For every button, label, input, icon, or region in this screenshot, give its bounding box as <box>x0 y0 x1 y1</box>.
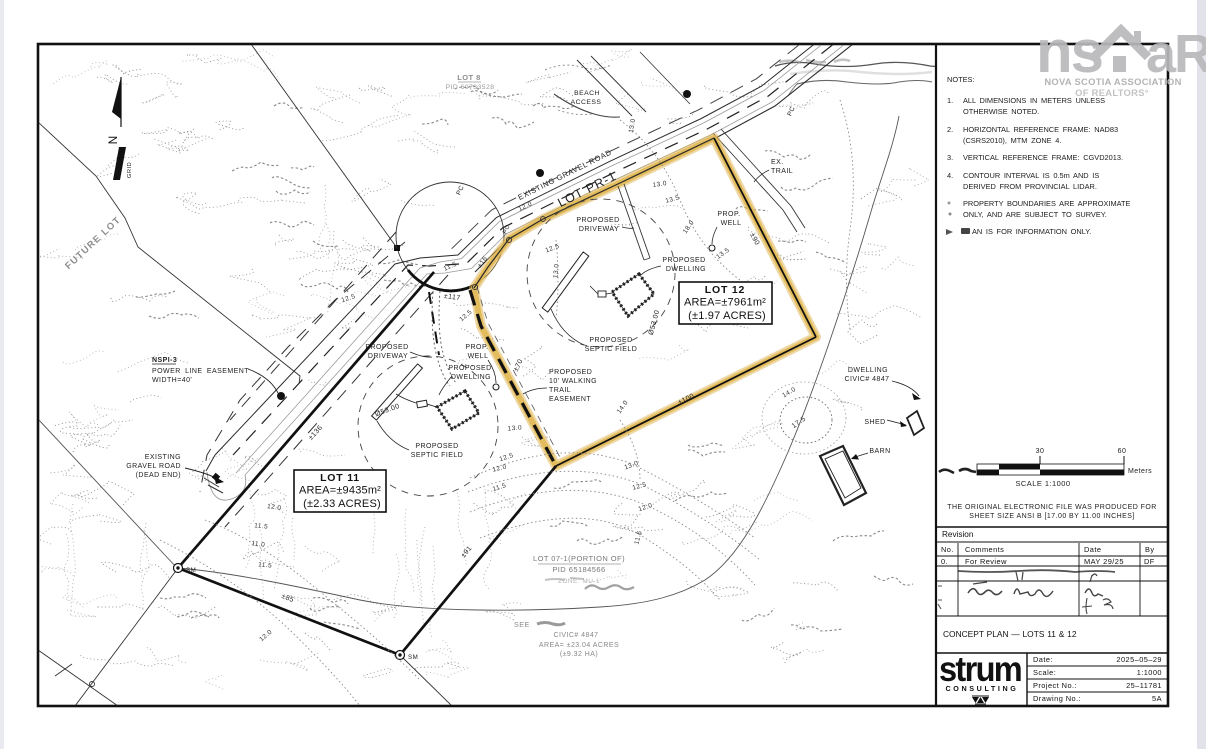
svg-text:No.: No. <box>941 545 954 554</box>
svg-text:PROPOSED: PROPOSED <box>549 369 592 376</box>
svg-text:Comments: Comments <box>965 545 1004 554</box>
svg-text:DF: DF <box>1144 557 1155 566</box>
svg-text:60: 60 <box>1118 448 1127 455</box>
svg-text:DERIVED FROM PROVINCIAL LIDAR.: DERIVED FROM PROVINCIAL LIDAR. <box>963 182 1097 191</box>
svg-text:AREA=±7961m²: AREA=±7961m² <box>684 297 766 309</box>
svg-text:PROPOSED: PROPOSED <box>589 337 632 344</box>
svg-text:PROP.: PROP. <box>717 211 740 218</box>
svg-text:SM: SM <box>186 567 196 574</box>
svg-text:DRIVEWAY: DRIVEWAY <box>579 226 619 233</box>
svg-text:AREA= ±23.04 ACRES: AREA= ±23.04 ACRES <box>539 642 619 649</box>
svg-text:OTHERWISE NOTED.: OTHERWISE NOTED. <box>963 107 1039 116</box>
svg-text:ACCESS: ACCESS <box>571 99 602 106</box>
svg-text:ONLY, AND ARE SUBJECT TO SURVE: ONLY, AND ARE SUBJECT TO SURVEY. <box>963 210 1107 219</box>
svg-text:CONSULTING: CONSULTING <box>946 684 1019 693</box>
svg-text:N: N <box>106 136 120 145</box>
svg-text:LOT 12: LOT 12 <box>705 284 745 296</box>
svg-text:LOT 07-1(PORTION OF): LOT 07-1(PORTION OF) <box>533 554 625 563</box>
svg-text:(±9.32 HA): (±9.32 HA) <box>560 651 598 658</box>
svg-text:30: 30 <box>1036 448 1045 455</box>
svg-text:Project No.:: Project No.: <box>1033 681 1077 690</box>
svg-text:(CSRS2010), MTM ZONE 4.: (CSRS2010), MTM ZONE 4. <box>963 136 1061 145</box>
svg-text:SCALE 1:1000: SCALE 1:1000 <box>1015 479 1070 488</box>
svg-text:LOT 8: LOT 8 <box>457 73 481 82</box>
svg-text:WIDTH=40': WIDTH=40' <box>152 377 192 384</box>
svg-text:TRAIL: TRAIL <box>771 168 793 175</box>
svg-text:ALL DIMENSIONS IN METERS UNLES: ALL DIMENSIONS IN METERS UNLESS <box>963 96 1105 105</box>
svg-text:PID 65184566: PID 65184566 <box>552 565 605 574</box>
svg-text:PROPOSED: PROPOSED <box>576 217 619 224</box>
svg-text:SEPTIC FIELD: SEPTIC FIELD <box>585 346 637 353</box>
svg-text:25–11781: 25–11781 <box>1126 681 1162 690</box>
svg-text:SM: SM <box>408 654 418 661</box>
svg-text:NSPI-3: NSPI-3 <box>152 357 177 364</box>
svg-text:aR: aR <box>1146 24 1206 84</box>
svg-text:Meters: Meters <box>1128 468 1152 475</box>
svg-text:MAY 29/25: MAY 29/25 <box>1084 557 1124 566</box>
svg-text:ns: ns <box>1036 18 1102 85</box>
svg-text:EASEMENT: EASEMENT <box>549 396 591 403</box>
svg-text:WELL: WELL <box>468 353 489 360</box>
svg-text:EX.: EX. <box>771 159 784 166</box>
svg-text:2025–05–29: 2025–05–29 <box>1116 655 1162 664</box>
svg-text:PROPOSED: PROPOSED <box>365 344 408 351</box>
svg-text:TRAIL: TRAIL <box>549 387 571 394</box>
svg-text:NOTES:: NOTES: <box>947 75 975 84</box>
svg-text:For Review: For Review <box>965 557 1007 566</box>
svg-text:2.: 2. <box>947 125 953 134</box>
svg-text:CIVIC# 4847: CIVIC# 4847 <box>844 376 889 383</box>
svg-text:PROPOSED: PROPOSED <box>662 257 705 264</box>
svg-text:CIVIC# 4847: CIVIC# 4847 <box>553 632 598 639</box>
svg-text:By: By <box>1145 545 1155 554</box>
svg-text:Date: Date <box>1084 545 1101 554</box>
svg-text:1:1000: 1:1000 <box>1137 668 1162 677</box>
svg-text:SHEET SIZE ANSI B [17.00 BY 11: SHEET SIZE ANSI B [17.00 BY 11.00 INCHES… <box>969 513 1135 520</box>
svg-text:GRAVEL ROAD: GRAVEL ROAD <box>126 463 181 470</box>
svg-text:CONCEPT PLAN — LOTS 11 & 12: CONCEPT PLAN — LOTS 11 & 12 <box>943 629 1077 639</box>
svg-text:PROP.: PROP. <box>465 344 488 351</box>
svg-text:AN IS FOR INFORMATION ONLY.: AN IS FOR INFORMATION ONLY. <box>972 227 1091 236</box>
svg-text:13.0: 13.0 <box>552 263 560 278</box>
svg-text:4.: 4. <box>947 171 953 180</box>
svg-text:POWER LINE EASEMENT: POWER LINE EASEMENT <box>152 368 249 375</box>
svg-text:WELL: WELL <box>721 220 742 227</box>
svg-text:VERTICAL REFERENCE FRAME: CGVD: VERTICAL REFERENCE FRAME: CGVD2013. <box>963 153 1123 162</box>
svg-text:11.5: 11.5 <box>258 561 273 569</box>
svg-text:Scale:: Scale: <box>1033 668 1056 677</box>
svg-text:3.: 3. <box>947 153 953 162</box>
svg-text:HORIZONTAL REFERENCE FRAME: NA: HORIZONTAL REFERENCE FRAME: NAD83 <box>963 125 1118 134</box>
svg-text:EXISTING: EXISTING <box>145 454 181 461</box>
svg-text:DWELLING: DWELLING <box>848 367 888 374</box>
svg-text:(DEAD END): (DEAD END) <box>136 472 181 479</box>
svg-text:GRID: GRID <box>127 162 133 178</box>
svg-text:SHED: SHED <box>864 419 885 426</box>
svg-text:LOT 11: LOT 11 <box>320 472 360 484</box>
svg-text:11.5: 11.5 <box>254 522 269 530</box>
svg-text:0.: 0. <box>941 557 948 566</box>
svg-text:THE ORIGINAL ELECTRONIC FILE W: THE ORIGINAL ELECTRONIC FILE WAS PRODUCE… <box>947 504 1157 511</box>
svg-text:SEE: SEE <box>514 620 530 629</box>
svg-text:DWELLING: DWELLING <box>666 266 706 273</box>
svg-text:PROPOSED: PROPOSED <box>448 365 491 372</box>
svg-text:BEACH: BEACH <box>574 90 600 97</box>
svg-text:SEPTIC FIELD: SEPTIC FIELD <box>411 452 463 459</box>
svg-text:AREA=±9435m²: AREA=±9435m² <box>299 485 381 497</box>
svg-text:Revision: Revision <box>942 530 974 539</box>
svg-text:(±2.33 ACRES): (±2.33 ACRES) <box>303 498 381 510</box>
svg-text:1.: 1. <box>947 96 953 105</box>
svg-text:PROPOSED: PROPOSED <box>415 443 458 450</box>
svg-text:PROPERTY BOUNDARIES ARE APPROX: PROPERTY BOUNDARIES ARE APPROXIMATE <box>963 199 1131 208</box>
svg-text:Drawing No.:: Drawing No.: <box>1033 694 1081 703</box>
svg-text:CONTOUR INTERVAL IS 0.5m AND I: CONTOUR INTERVAL IS 0.5m AND IS <box>963 171 1099 180</box>
svg-text:DRIVEWAY: DRIVEWAY <box>368 353 408 360</box>
svg-text:DWELLING: DWELLING <box>451 374 491 381</box>
svg-text:BARN: BARN <box>869 448 890 455</box>
svg-text:NOVA SCOTIA ASSOCIATION: NOVA SCOTIA ASSOCIATION <box>1044 76 1181 87</box>
svg-text:10' WALKING: 10' WALKING <box>549 378 597 385</box>
svg-text:13.0: 13.0 <box>507 424 522 432</box>
svg-text:Date:: Date: <box>1033 655 1053 664</box>
svg-text:PID 60733528: PID 60733528 <box>446 84 495 91</box>
svg-text:5A: 5A <box>1152 694 1162 703</box>
svg-text:(±1.97 ACRES): (±1.97 ACRES) <box>688 310 766 322</box>
